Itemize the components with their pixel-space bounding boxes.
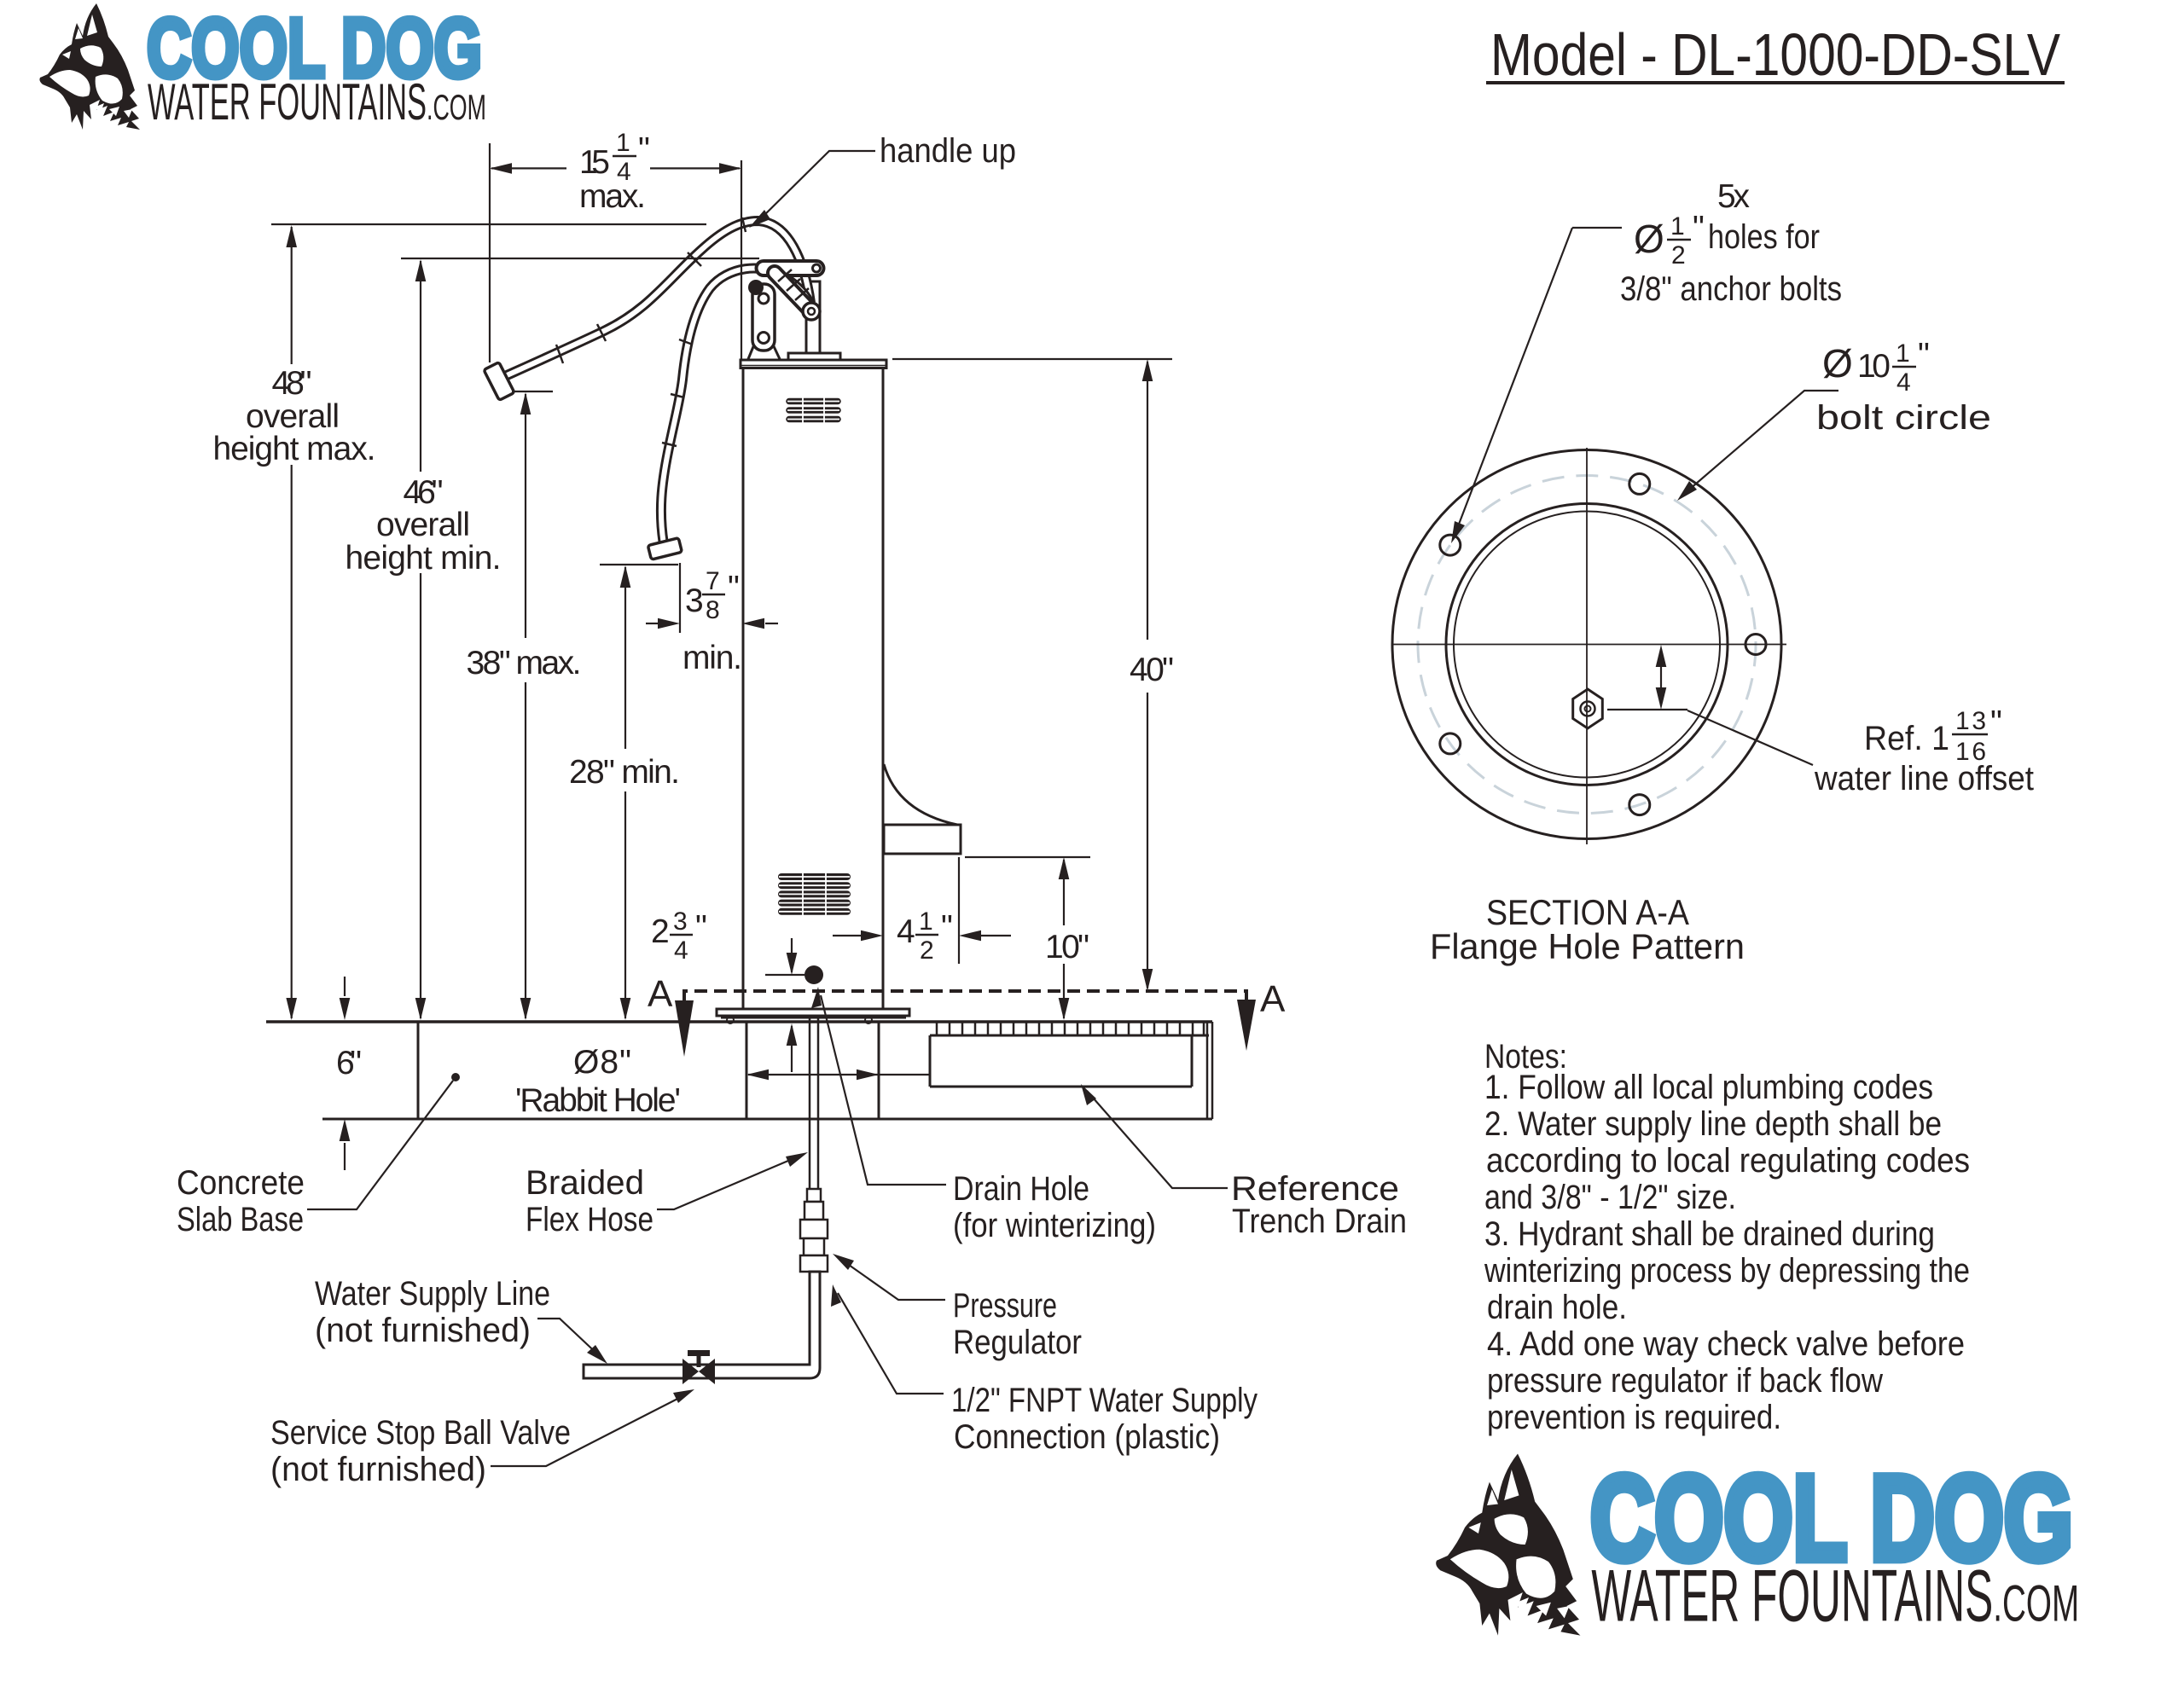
svg-text:5x: 5x [1717,178,1751,215]
svg-text:Drain Hole: Drain Hole [953,1170,1089,1208]
svg-text:Concrete: Concrete [177,1164,305,1202]
svg-text:(for winterizing): (for winterizing) [953,1207,1156,1244]
svg-text:": " [941,909,953,946]
svg-text:10: 10 [1857,348,1891,385]
svg-text:3/8" anchor bolts: 3/8" anchor bolts [1620,270,1842,308]
svg-text:height max.: height max. [213,431,376,467]
svg-text:46": 46" [404,474,444,511]
svg-text:": " [1990,704,2002,741]
svg-text:Ref. 1: Ref. 1 [1864,720,1949,757]
svg-text:Ø: Ø [1634,217,1664,261]
svg-text:Service Stop Ball Valve: Service Stop Ball Valve [270,1414,571,1452]
svg-text:drain hole.: drain hole. [1487,1289,1627,1326]
svg-text:1: 1 [616,129,630,157]
svg-text:A: A [648,973,673,1015]
svg-text:6": 6" [336,1045,362,1081]
svg-text:height min.: height min. [346,540,502,577]
svg-text:A: A [1260,978,1286,1020]
svg-text:overall: overall [376,507,470,543]
svg-text:": " [728,570,740,606]
svg-text:4: 4 [897,913,915,950]
svg-text:2: 2 [1671,241,1686,270]
svg-text:": " [638,131,650,168]
svg-text:Ø8": Ø8" [573,1044,631,1081]
svg-text:": " [1693,210,1705,246]
svg-text:water line offset: water line offset [1814,760,2034,797]
svg-text:40": 40" [1130,652,1174,688]
svg-text:48": 48" [272,365,312,402]
svg-text:Water Supply Line: Water Supply Line [315,1275,550,1313]
svg-text:holes for: holes for [1708,218,1820,256]
svg-text:7: 7 [706,567,720,595]
svg-text:overall: overall [246,398,340,435]
svg-text:Flange Hole Pattern: Flange Hole Pattern [1430,926,1745,966]
svg-text:min.: min. [682,640,742,676]
svg-text:and 3/8" - 1/2" size.: and 3/8" - 1/2" size. [1484,1179,1736,1216]
svg-text:2. Water supply line depth sha: 2. Water supply line depth shall be [1484,1105,1942,1143]
svg-text:handle up: handle up [880,132,1016,170]
svg-text:Pressure: Pressure [953,1287,1057,1325]
svg-text:28" min.: 28" min. [569,754,680,791]
svg-text:1: 1 [1896,339,1910,368]
svg-text:Regulator: Regulator [953,1324,1082,1361]
svg-text:'Rabbit Hole': 'Rabbit Hole' [515,1082,681,1119]
svg-text:(not furnished): (not furnished) [315,1312,531,1349]
svg-text:10": 10" [1045,929,1089,965]
svg-text:3. Hydrant shall be drained du: 3. Hydrant shall be drained during [1484,1215,1935,1253]
svg-text:": " [1918,337,1930,374]
svg-text:4: 4 [1896,368,1911,397]
svg-text:max.: max. [579,178,646,215]
svg-text:3: 3 [685,583,704,619]
svg-text:4. Add one way check valve bef: 4. Add one way check valve before [1487,1325,1965,1363]
svg-text:38" max.: 38" max. [467,645,582,681]
svg-text:Connection (plastic): Connection (plastic) [954,1418,1220,1456]
svg-text:1: 1 [1670,212,1685,241]
svg-text:1/2" FNPT Water Supply: 1/2" FNPT Water Supply [951,1382,1258,1419]
svg-text:Braided: Braided [526,1164,644,1202]
svg-text:2: 2 [920,936,934,965]
svg-text:3: 3 [673,907,688,936]
svg-text:4: 4 [674,936,688,965]
svg-text:8: 8 [706,596,720,624]
svg-text:15: 15 [579,144,610,181]
svg-text:1. Follow all local plumbing c: 1. Follow all local plumbing codes [1484,1069,1933,1106]
svg-text:1: 1 [919,907,933,936]
svg-text:bolt circle: bolt circle [1816,399,1991,437]
svg-text:Flex Hose: Flex Hose [526,1201,653,1238]
svg-text:according to local regulating: according to local regulating codes [1486,1142,1970,1180]
svg-text:winterizing process by depress: winterizing process by depressing the [1484,1252,1970,1290]
svg-text:pressure regulator if back flo: pressure regulator if back flow [1487,1362,1883,1400]
svg-text:Ø: Ø [1822,341,1853,386]
svg-text:prevention is required.: prevention is required. [1487,1399,1781,1436]
svg-text:Model - DL-1000-DD-SLV: Model - DL-1000-DD-SLV [1490,21,2060,88]
svg-text:": " [695,909,707,946]
svg-text:2: 2 [651,913,670,950]
svg-text:Slab Base: Slab Base [177,1201,304,1238]
svg-text:Trench Drain: Trench Drain [1232,1203,1407,1240]
svg-text:(not furnished): (not furnished) [270,1451,486,1488]
